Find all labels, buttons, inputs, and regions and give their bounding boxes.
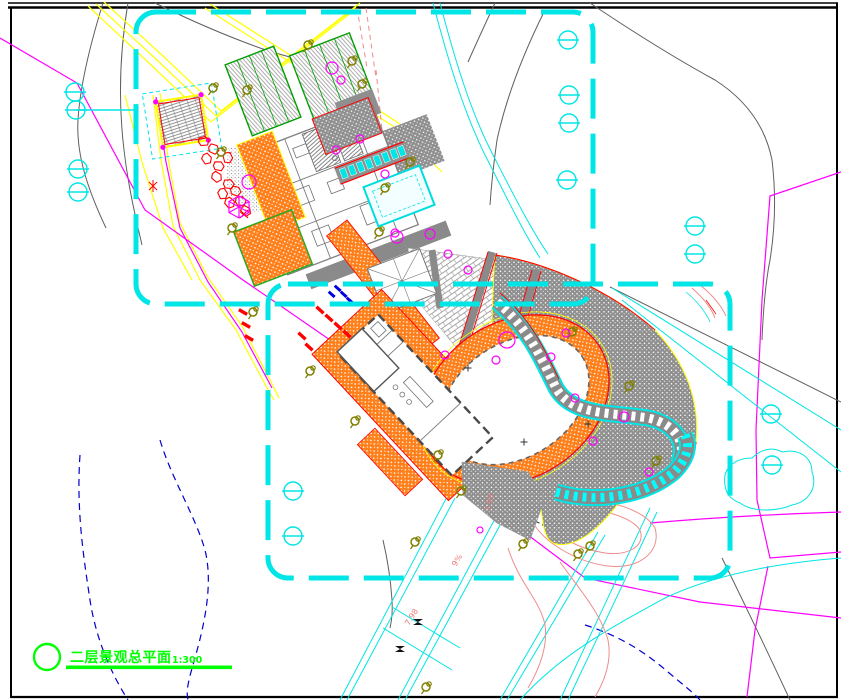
detail-bubble-icon bbox=[34, 644, 60, 670]
drawing-scale: 1:300 bbox=[172, 655, 203, 666]
cad-canvas: 7.98 7.99 9% 二层景观总平面 1:300 bbox=[0, 0, 841, 700]
slope-label: 9% bbox=[450, 552, 465, 568]
drawing-sheet: 7.98 7.99 9% 二层景观总平面 1:300 bbox=[0, 0, 841, 700]
drawing-title: 二层景观总平面 bbox=[70, 649, 172, 666]
title-underline bbox=[66, 666, 232, 670]
pond-outline bbox=[725, 449, 814, 510]
title-block: 二层景观总平面 1:300 bbox=[34, 644, 232, 670]
grade-labels: 7.98 7.99 9% bbox=[403, 493, 496, 627]
